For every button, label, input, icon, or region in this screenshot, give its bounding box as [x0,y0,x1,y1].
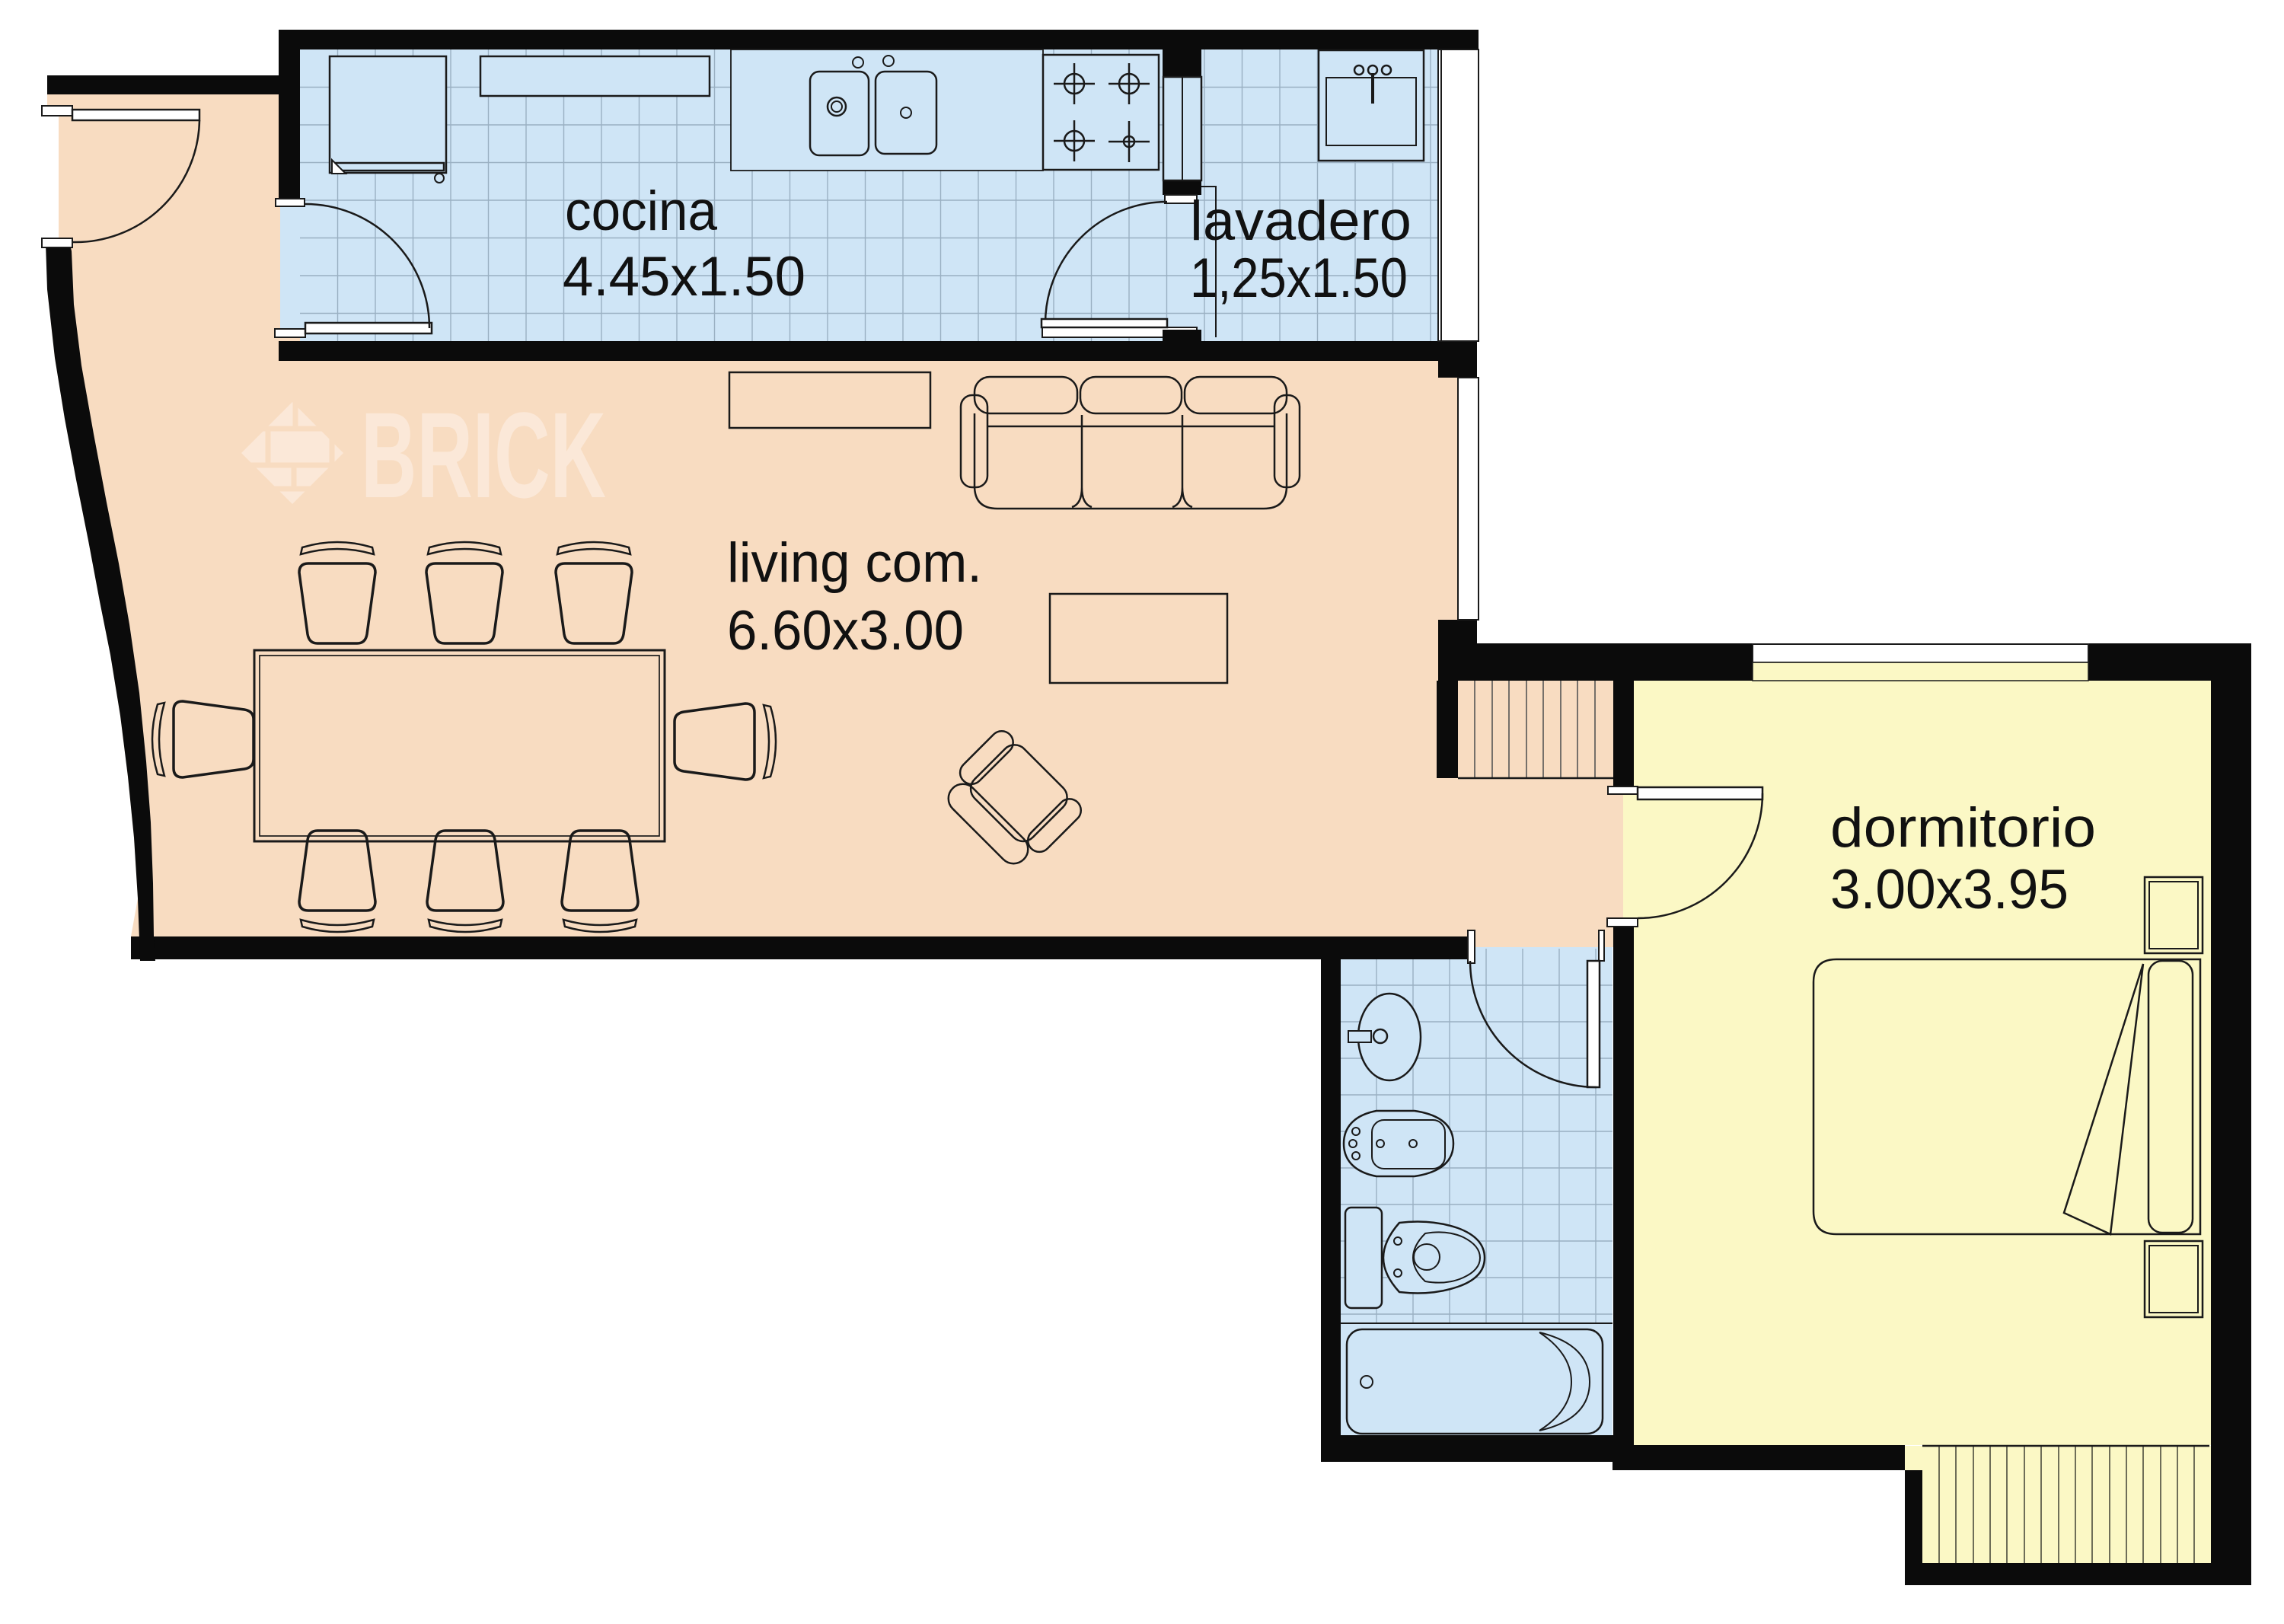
svg-text:3.00x3.95: 3.00x3.95 [1830,859,2069,920]
svg-text:4.45x1.50: 4.45x1.50 [563,246,805,308]
svg-text:BRICK: BRICK [361,387,606,523]
svg-text:6.60x3.00: 6.60x3.00 [727,600,964,662]
svg-text:cocina: cocina [565,180,717,242]
svg-text:lavadero: lavadero [1190,190,1412,252]
svg-text:dormitorio: dormitorio [1830,797,2096,859]
svg-text:1,25x1.50: 1,25x1.50 [1190,247,1408,309]
svg-text:living com.: living com. [727,532,982,594]
